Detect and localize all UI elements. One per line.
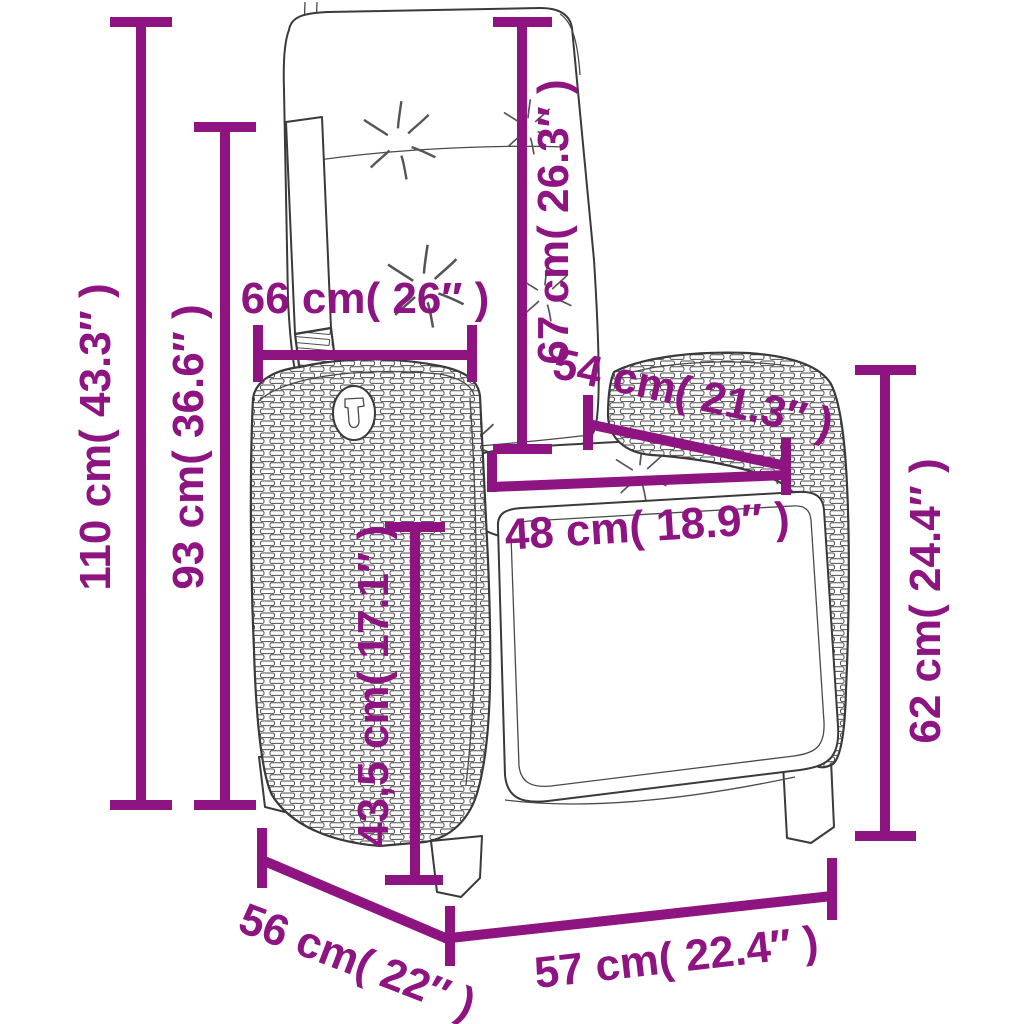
recline-knob (333, 386, 375, 440)
dim-label-seat-depth: 56 cm( 22″ ) (232, 894, 482, 1024)
dim-label-back-width: 66 cm( 26″ ) (241, 274, 490, 323)
dim-label-seat-height: 43,5 cm( 17.1″ ) (349, 525, 398, 847)
dim-label-total-height: 110 cm( 43.3″ ) (71, 283, 120, 590)
dimension-diagram-canvas: 110 cm( 43.3″ ) 93 cm( 36.6″ ) 66 cm( 26… (0, 0, 1024, 1024)
dim-label-backrest-length: 67 cm( 26.3″ ) (529, 79, 578, 364)
dim-label-armrest-height: 62 cm( 24.4″ ) (901, 458, 950, 743)
back-right-leg (783, 760, 834, 843)
front-left-leg (431, 836, 482, 897)
dim-label-back-height: 93 cm( 36.6″ ) (164, 304, 213, 589)
chair-diagram: 110 cm( 43.3″ ) 93 cm( 36.6″ ) 66 cm( 26… (0, 0, 1024, 1024)
